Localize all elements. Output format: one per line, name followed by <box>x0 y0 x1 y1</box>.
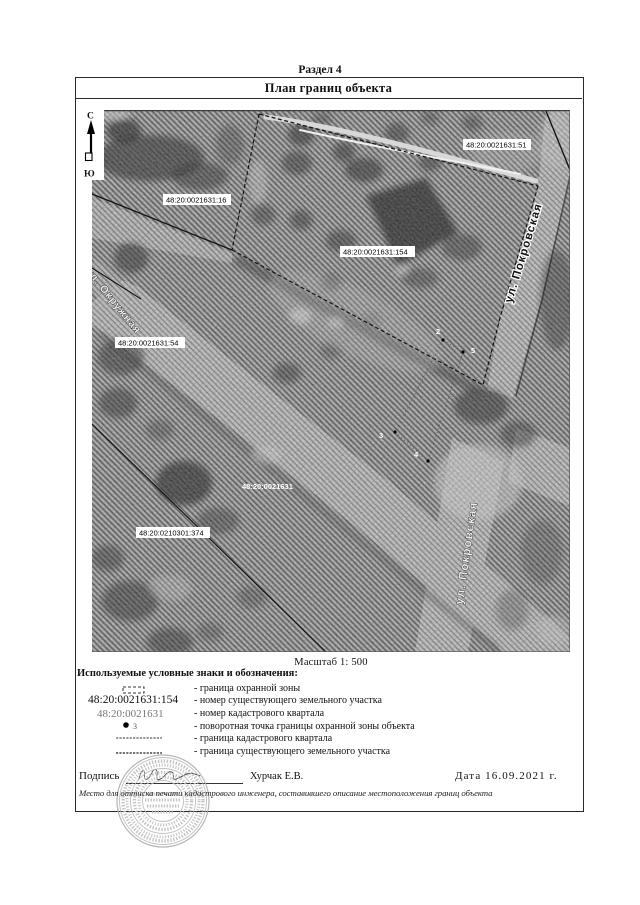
svg-text:С: С <box>87 112 94 122</box>
svg-text:48:20:0021631:51: 48:20:0021631:51 <box>466 141 526 150</box>
svg-text:48:20:0021631:54: 48:20:0021631:54 <box>118 339 178 348</box>
svg-text:5: 5 <box>471 346 475 355</box>
svg-text:3: 3 <box>379 431 383 440</box>
svg-text:48:20:0210301:374: 48:20:0210301:374 <box>139 529 204 538</box>
svg-text:48:20:0021631:154: 48:20:0021631:154 <box>343 248 408 257</box>
svg-text:3: 3 <box>133 722 137 731</box>
svg-text:48:20:0021631:16: 48:20:0021631:16 <box>166 196 226 205</box>
svg-text:Ю: Ю <box>84 170 95 180</box>
svg-text:48:20:0021631: 48:20:0021631 <box>242 482 293 491</box>
svg-text:2: 2 <box>436 327 440 336</box>
